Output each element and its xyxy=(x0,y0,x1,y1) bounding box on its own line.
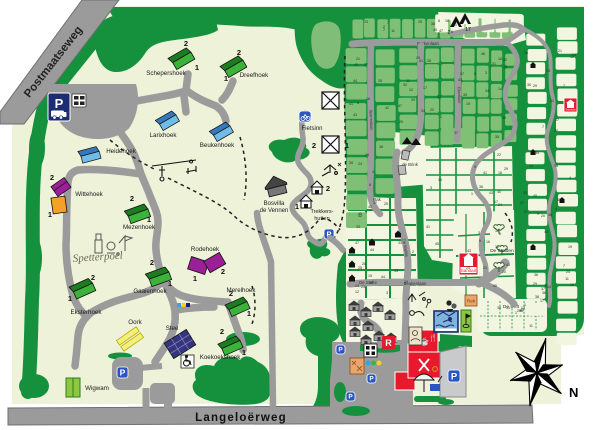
svg-text:25: 25 xyxy=(378,79,382,83)
svg-text:11: 11 xyxy=(565,277,569,281)
svg-text:9: 9 xyxy=(537,212,539,216)
svg-text:14: 14 xyxy=(529,164,533,168)
svg-text:36: 36 xyxy=(548,213,552,217)
svg-text:2: 2 xyxy=(326,184,330,193)
svg-text:38: 38 xyxy=(431,22,435,26)
svg-text:Bosvilla: Bosvilla xyxy=(264,201,285,207)
svg-text:25: 25 xyxy=(384,202,388,206)
svg-text:46: 46 xyxy=(481,52,485,56)
svg-text:14: 14 xyxy=(438,178,442,182)
svg-text:2: 2 xyxy=(50,173,54,182)
svg-text:2: 2 xyxy=(221,267,225,276)
svg-text:1: 1 xyxy=(345,141,349,150)
svg-text:43: 43 xyxy=(394,269,398,273)
svg-text:17: 17 xyxy=(465,27,471,33)
svg-text:32: 32 xyxy=(437,95,441,99)
svg-text:38: 38 xyxy=(497,306,501,310)
svg-text:Wigwam: Wigwam xyxy=(85,385,109,392)
svg-text:18: 18 xyxy=(495,229,499,233)
svg-text:38: 38 xyxy=(535,295,539,299)
svg-text:42: 42 xyxy=(385,106,389,110)
svg-text:hutten: hutten xyxy=(314,216,329,222)
svg-text:R: R xyxy=(385,338,392,348)
svg-text:Oork: Oork xyxy=(128,319,142,326)
svg-text:35: 35 xyxy=(349,161,353,165)
svg-text:15: 15 xyxy=(466,102,470,106)
svg-text:N: N xyxy=(569,385,578,400)
svg-text:31: 31 xyxy=(550,99,554,103)
svg-text:34: 34 xyxy=(503,65,507,69)
svg-text:6: 6 xyxy=(451,30,453,34)
svg-text:13: 13 xyxy=(554,164,558,168)
svg-text:20: 20 xyxy=(399,120,403,124)
svg-text:21: 21 xyxy=(356,57,360,61)
svg-text:37: 37 xyxy=(364,63,368,67)
svg-text:23: 23 xyxy=(546,69,550,73)
svg-text:21: 21 xyxy=(483,266,487,270)
svg-text:36: 36 xyxy=(534,273,538,277)
svg-text:15: 15 xyxy=(404,280,408,284)
svg-text:33: 33 xyxy=(398,241,402,245)
svg-text:27: 27 xyxy=(554,129,558,133)
svg-text:2: 2 xyxy=(220,327,224,336)
svg-text:29: 29 xyxy=(504,167,508,171)
svg-text:11: 11 xyxy=(406,79,410,83)
svg-text:47: 47 xyxy=(398,104,402,108)
svg-text:44: 44 xyxy=(544,230,548,234)
svg-text:45: 45 xyxy=(502,116,506,120)
svg-text:45: 45 xyxy=(358,212,362,216)
svg-text:43: 43 xyxy=(489,191,493,195)
svg-text:14: 14 xyxy=(572,53,576,57)
svg-text:14: 14 xyxy=(547,285,551,289)
svg-text:33: 33 xyxy=(356,225,360,229)
svg-text:30: 30 xyxy=(527,83,531,87)
svg-text:20: 20 xyxy=(502,270,506,274)
svg-text:17: 17 xyxy=(423,86,427,90)
svg-text:2: 2 xyxy=(184,39,188,48)
svg-text:11: 11 xyxy=(529,324,533,328)
svg-text:12: 12 xyxy=(355,290,359,294)
svg-text:44: 44 xyxy=(370,248,374,252)
svg-text:Wittehoek: Wittehoek xyxy=(75,191,103,198)
svg-text:38: 38 xyxy=(379,145,383,149)
svg-text:1: 1 xyxy=(48,210,52,219)
svg-text:6: 6 xyxy=(499,232,501,236)
svg-text:4: 4 xyxy=(569,176,571,180)
svg-text:Koekoekshoek: Koekoekshoek xyxy=(200,354,241,361)
svg-text:Merelhoek: Merelhoek xyxy=(227,287,257,294)
svg-text:16: 16 xyxy=(486,240,490,244)
svg-text:43: 43 xyxy=(353,113,357,117)
svg-text:25: 25 xyxy=(466,266,470,270)
svg-text:43: 43 xyxy=(458,78,462,82)
svg-text:40: 40 xyxy=(497,190,501,194)
svg-text:16: 16 xyxy=(570,283,574,287)
svg-text:35: 35 xyxy=(495,135,499,139)
svg-text:P: P xyxy=(348,393,353,400)
svg-text:7: 7 xyxy=(387,21,389,25)
svg-text:5: 5 xyxy=(545,284,547,288)
svg-text:1: 1 xyxy=(295,202,299,211)
svg-text:Stee: Stee xyxy=(166,325,179,332)
svg-text:12: 12 xyxy=(495,245,499,249)
svg-text:3: 3 xyxy=(478,231,480,235)
svg-text:9: 9 xyxy=(474,165,476,169)
svg-text:47: 47 xyxy=(439,29,443,33)
svg-text:1: 1 xyxy=(224,74,228,83)
svg-text:43: 43 xyxy=(354,63,358,67)
svg-text:18: 18 xyxy=(445,19,449,23)
svg-text:41: 41 xyxy=(419,59,423,63)
svg-text:Trekkers-: Trekkers- xyxy=(310,209,333,215)
svg-text:23: 23 xyxy=(364,20,368,24)
svg-text:31: 31 xyxy=(506,306,510,310)
svg-text:21: 21 xyxy=(558,49,562,53)
svg-text:14: 14 xyxy=(498,87,502,91)
svg-text:22: 22 xyxy=(430,108,434,112)
svg-text:P: P xyxy=(338,346,343,353)
svg-text:1: 1 xyxy=(365,266,367,270)
svg-text:40: 40 xyxy=(533,194,537,198)
svg-text:41: 41 xyxy=(426,225,430,229)
svg-text:Sanitair: Sanitair xyxy=(565,108,575,112)
svg-text:1: 1 xyxy=(168,279,172,288)
svg-text:3: 3 xyxy=(485,71,487,75)
svg-text:44: 44 xyxy=(353,79,357,83)
svg-text:43: 43 xyxy=(467,249,471,253)
svg-text:P: P xyxy=(120,367,126,377)
svg-text:19: 19 xyxy=(568,245,572,249)
svg-text:24: 24 xyxy=(365,153,369,157)
svg-text:29: 29 xyxy=(533,84,537,88)
svg-text:Rodehoek: Rodehoek xyxy=(191,246,220,253)
svg-text:41: 41 xyxy=(483,171,487,175)
svg-text:de Vennen: de Vennen xyxy=(260,208,289,214)
svg-text:37: 37 xyxy=(524,210,528,214)
svg-text:23: 23 xyxy=(361,285,365,289)
svg-text:7: 7 xyxy=(563,264,565,268)
svg-text:Schepershoek: Schepershoek xyxy=(146,70,186,77)
svg-text:1: 1 xyxy=(147,215,151,224)
svg-text:16: 16 xyxy=(524,51,528,55)
svg-text:17: 17 xyxy=(540,299,544,303)
svg-text:9: 9 xyxy=(479,239,481,243)
svg-text:33: 33 xyxy=(523,191,527,195)
svg-text:7: 7 xyxy=(383,28,385,32)
svg-text:22: 22 xyxy=(497,153,501,157)
svg-text:44: 44 xyxy=(381,275,385,279)
svg-text:37: 37 xyxy=(520,201,524,205)
svg-text:13: 13 xyxy=(355,284,359,288)
svg-text:37: 37 xyxy=(460,72,464,76)
svg-text:4: 4 xyxy=(372,170,374,174)
svg-text:1: 1 xyxy=(193,274,197,283)
svg-text:34: 34 xyxy=(485,89,489,93)
svg-text:37: 37 xyxy=(373,201,377,205)
svg-text:🍴: 🍴 xyxy=(429,333,438,342)
svg-text:35: 35 xyxy=(427,59,431,63)
svg-text:P: P xyxy=(451,371,458,382)
svg-text:4: 4 xyxy=(555,207,557,211)
svg-text:24: 24 xyxy=(358,162,362,166)
svg-text:30: 30 xyxy=(403,83,407,87)
svg-text:Eksterhoek: Eksterhoek xyxy=(71,309,103,316)
svg-text:31: 31 xyxy=(492,62,496,66)
svg-text:1: 1 xyxy=(471,192,473,196)
svg-text:1: 1 xyxy=(68,294,72,303)
svg-text:43: 43 xyxy=(506,263,510,267)
svg-text:17: 17 xyxy=(555,118,559,122)
svg-text:18: 18 xyxy=(369,281,373,285)
svg-text:37: 37 xyxy=(454,131,458,135)
svg-text:25: 25 xyxy=(358,266,362,270)
svg-text:10: 10 xyxy=(453,23,457,27)
svg-text:3: 3 xyxy=(430,186,432,190)
svg-text:25: 25 xyxy=(418,20,422,24)
svg-text:Gaaienhoek: Gaaienhoek xyxy=(133,288,167,295)
svg-text:6: 6 xyxy=(357,101,359,105)
svg-text:36: 36 xyxy=(542,291,546,295)
svg-text:24: 24 xyxy=(566,270,570,274)
svg-text:47: 47 xyxy=(355,241,359,245)
svg-text:39: 39 xyxy=(411,98,415,102)
svg-text:Eikenlaan: Eikenlaan xyxy=(457,87,462,104)
svg-text:Sparrenlaan: Sparrenlaan xyxy=(369,110,374,131)
svg-text:1: 1 xyxy=(242,348,246,357)
svg-text:3: 3 xyxy=(386,291,388,295)
svg-text:11: 11 xyxy=(391,29,395,33)
svg-text:2: 2 xyxy=(91,273,95,282)
svg-text:Dreefhoek: Dreefhoek xyxy=(240,72,269,79)
svg-text:1: 1 xyxy=(247,309,251,318)
svg-text:De Walden: De Walden xyxy=(490,248,514,254)
svg-text:16: 16 xyxy=(498,171,502,175)
svg-text:41: 41 xyxy=(349,102,353,106)
svg-text:12: 12 xyxy=(409,88,413,92)
svg-text:6: 6 xyxy=(438,19,440,23)
svg-text:32: 32 xyxy=(503,58,507,62)
svg-text:P: P xyxy=(55,96,64,111)
svg-text:1: 1 xyxy=(440,115,442,119)
svg-text:34: 34 xyxy=(421,109,425,113)
svg-text:2: 2 xyxy=(150,258,154,267)
svg-text:36: 36 xyxy=(479,185,483,189)
svg-text:20: 20 xyxy=(541,214,545,218)
svg-text:8: 8 xyxy=(369,183,371,187)
svg-text:5: 5 xyxy=(474,72,476,76)
svg-text:1: 1 xyxy=(195,63,199,72)
svg-text:42: 42 xyxy=(368,205,372,209)
svg-text:13: 13 xyxy=(521,306,525,310)
svg-text:24: 24 xyxy=(498,203,502,207)
svg-text:Beukenhoek: Beukenhoek xyxy=(200,142,235,149)
svg-text:29: 29 xyxy=(533,282,537,286)
svg-text:Rek: Rek xyxy=(467,299,476,304)
svg-text:Fietsinn: Fietsinn xyxy=(301,126,322,132)
svg-text:Heidehoek: Heidehoek xyxy=(106,148,136,155)
svg-text:2: 2 xyxy=(237,48,241,57)
svg-text:15: 15 xyxy=(368,274,372,278)
svg-text:45: 45 xyxy=(435,242,439,246)
svg-text:35: 35 xyxy=(463,93,467,97)
svg-text:16: 16 xyxy=(498,57,502,61)
svg-text:7: 7 xyxy=(563,84,565,88)
svg-text:2: 2 xyxy=(412,250,414,254)
svg-text:45: 45 xyxy=(433,28,437,32)
svg-text:2: 2 xyxy=(130,194,134,203)
svg-text:40: 40 xyxy=(493,284,497,288)
svg-text:16: 16 xyxy=(366,97,370,101)
svg-text:P: P xyxy=(369,375,374,382)
svg-text:Langeloërweg: Langeloërweg xyxy=(195,412,287,424)
svg-text:7: 7 xyxy=(542,125,544,129)
svg-text:2: 2 xyxy=(312,141,316,150)
svg-text:Larixhoek: Larixhoek xyxy=(150,132,178,139)
svg-text:Mezenhoek: Mezenhoek xyxy=(123,224,156,231)
